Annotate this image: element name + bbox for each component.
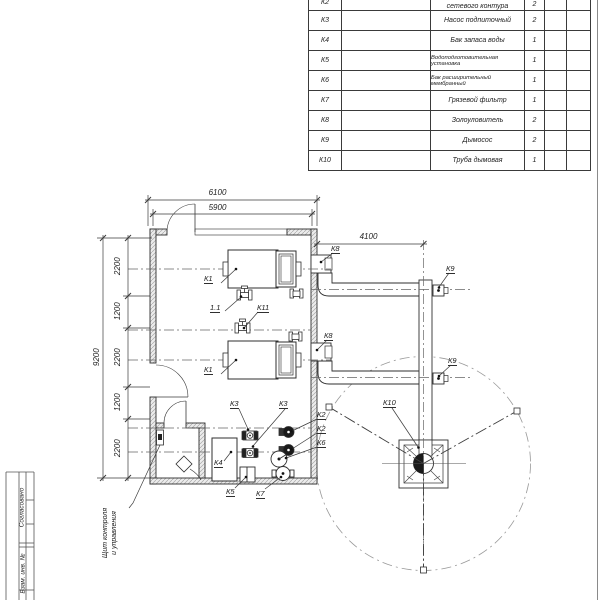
- row-blank: [567, 31, 591, 51]
- row-blank: [567, 71, 591, 91]
- label-k9-1: К9: [446, 265, 455, 274]
- row-pos: К8: [309, 111, 342, 131]
- label-k4: К4: [214, 459, 223, 468]
- inner-door-arc: [164, 401, 186, 423]
- dim-top-outer: 6100: [175, 189, 260, 197]
- row-blank: [567, 0, 591, 11]
- row-qty: 1: [525, 91, 545, 111]
- row-blank: [342, 131, 431, 151]
- row-qty: 1: [525, 71, 545, 91]
- row-blank: [342, 91, 431, 111]
- row-blank: [342, 51, 431, 71]
- row-name: Труба дымовая: [431, 151, 525, 171]
- row-name: Водоподготовительная установка: [431, 51, 525, 71]
- valves: [235, 286, 303, 341]
- dim-chain-2: 1200: [114, 294, 122, 328]
- dim-right: 4100: [326, 233, 411, 241]
- label-k3-2: К3: [279, 400, 288, 409]
- dim-chain-4: 1200: [114, 385, 122, 419]
- label-k8-1: К8: [331, 245, 340, 254]
- valve-boiler2-inlet: [289, 332, 302, 341]
- pumps-k3: [242, 431, 258, 458]
- row-pos: К2: [309, 0, 342, 11]
- control-panel: [157, 430, 164, 445]
- stamp-subst: Взам. инв. №: [20, 545, 27, 600]
- label-k3-1: К3: [230, 400, 239, 409]
- row-blank: [342, 111, 431, 131]
- row-blank: [545, 71, 567, 91]
- sheet-frame-right: [597, 0, 598, 600]
- row-name: Грязевой фильтр: [431, 91, 525, 111]
- row-qty: 1: [525, 151, 545, 171]
- row-blank: [342, 0, 431, 11]
- valve-boiler1-outlet: [290, 289, 303, 298]
- row-blank: [545, 111, 567, 131]
- dim-chain-3: 2200: [114, 340, 122, 374]
- row-name: Золоуловитель: [431, 111, 525, 131]
- label-k6: К6: [317, 439, 326, 448]
- row-name: Насос подпиточный: [431, 11, 525, 31]
- row-pos: К7: [309, 91, 342, 111]
- vertical-flue-duct: [419, 280, 432, 455]
- label-k1-1: К1: [204, 275, 213, 284]
- panel-note-line1: Щит контроля: [102, 503, 111, 563]
- row-qty: 2: [525, 0, 545, 11]
- valve-k11: [235, 319, 250, 333]
- floor-drain: [176, 456, 201, 480]
- doors: [156, 204, 195, 423]
- label-k7: К7: [256, 490, 265, 499]
- label-1-1: 1.1: [210, 304, 220, 313]
- boiler-k1-2: [223, 341, 301, 379]
- row-blank: [545, 151, 567, 171]
- boiler-k1-1: [223, 250, 301, 288]
- dim-overall: 9200: [93, 337, 101, 377]
- dim-top-inner: 5900: [175, 204, 260, 212]
- row-name: Дымосос: [431, 131, 525, 151]
- row-blank: [545, 11, 567, 31]
- row-blank: [545, 51, 567, 71]
- label-k10: К10: [383, 399, 396, 408]
- row-blank: [567, 51, 591, 71]
- control-panel-note: Щит контроля и управления: [102, 503, 122, 563]
- flue-ducts: [311, 255, 432, 455]
- dim-chain-1: 2200: [114, 249, 122, 283]
- row-pos: К3: [309, 11, 342, 31]
- row-blank: [342, 151, 431, 171]
- row-pos: К4: [309, 31, 342, 51]
- label-k11: К11: [257, 304, 269, 313]
- row-blank: [342, 11, 431, 31]
- dim-chain-5: 2200: [114, 431, 122, 465]
- row-name: Бак запаса воды: [431, 31, 525, 51]
- row-pos: К10: [309, 151, 342, 171]
- label-k5: К5: [226, 488, 235, 497]
- row-qty: 1: [525, 51, 545, 71]
- stamp-agreed: Согласовано: [19, 476, 26, 540]
- row-blank: [342, 31, 431, 51]
- row-blank: [567, 151, 591, 171]
- label-k8-2: К8: [324, 332, 333, 341]
- row-pos: К6: [309, 71, 342, 91]
- row-blank: [567, 11, 591, 31]
- flue-elbow-1: [318, 273, 420, 296]
- row-qty: 2: [525, 111, 545, 131]
- row-blank: [545, 31, 567, 51]
- tank-k6: [271, 451, 287, 467]
- label-k1-2: К1: [204, 366, 213, 375]
- row-blank: [545, 91, 567, 111]
- left-door-arc: [156, 365, 188, 397]
- drawing-sheet: К2сетевого контура2К3Насос подпиточный2К…: [0, 0, 600, 600]
- unit-k5: [240, 467, 255, 482]
- row-blank: [545, 0, 567, 11]
- parts-table: К2сетевого контура2К3Насос подпиточный2К…: [308, 0, 591, 171]
- row-blank: [567, 111, 591, 131]
- row-name: Бак расширительный мембранный: [431, 71, 525, 91]
- row-blank: [342, 71, 431, 91]
- row-blank: [567, 131, 591, 151]
- label-k9-2: К9: [448, 357, 457, 366]
- row-blank: [545, 131, 567, 151]
- row-name: сетевого контура: [431, 0, 525, 11]
- row-qty: 2: [525, 11, 545, 31]
- smoke-exhausters: [433, 285, 448, 384]
- row-qty: 1: [525, 31, 545, 51]
- panel-note-line2: и управления: [111, 503, 120, 563]
- row-qty: 2: [525, 131, 545, 151]
- label-k2-1: К2: [317, 411, 326, 420]
- row-blank: [567, 91, 591, 111]
- row-pos: К9: [309, 131, 342, 151]
- label-k2-2: К2: [317, 425, 326, 434]
- row-pos: К5: [309, 51, 342, 71]
- flue-elbow-2: [318, 361, 420, 384]
